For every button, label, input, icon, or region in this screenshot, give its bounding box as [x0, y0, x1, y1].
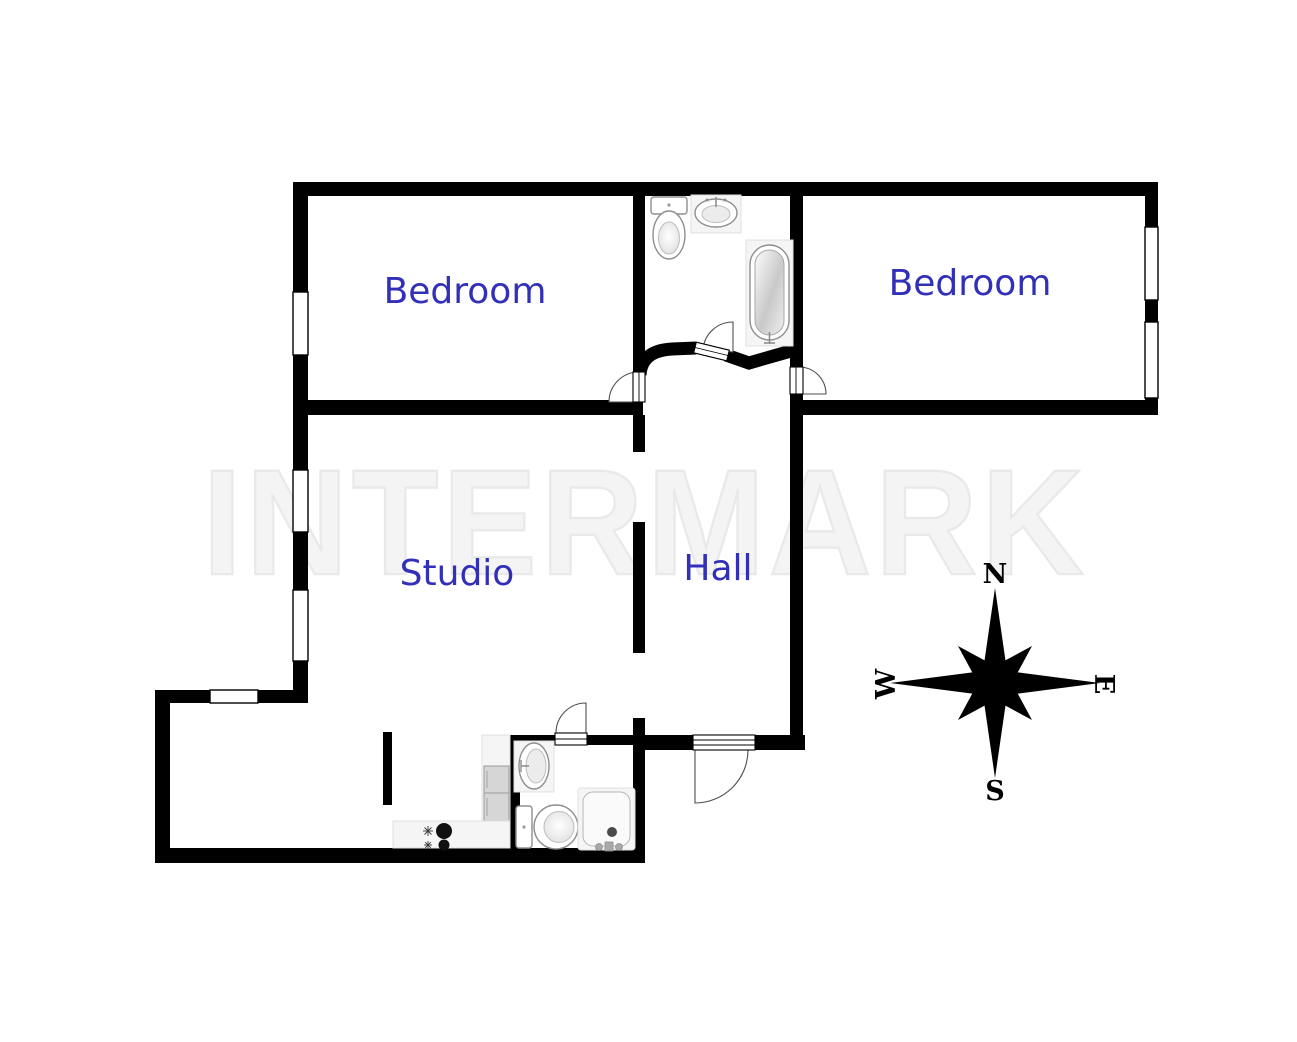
room-label-studio: Studio — [400, 553, 515, 594]
bottom-bathroom-fixtures — [514, 741, 635, 851]
cabinet-icon — [482, 735, 510, 822]
bedroom-left-door — [609, 372, 645, 402]
compass-east-label: E — [1088, 674, 1119, 695]
compass-west-label: W — [871, 668, 902, 700]
window — [293, 292, 308, 355]
window — [1145, 227, 1158, 300]
bathtub-icon — [746, 240, 793, 346]
shower-icon — [578, 788, 635, 851]
sink-icon — [691, 195, 741, 233]
room-label-bedroom-right: Bedroom — [889, 263, 1052, 304]
bathroom-door — [694, 322, 733, 361]
compass-south-label: S — [985, 776, 1005, 807]
toilet-icon — [651, 197, 687, 259]
window — [293, 590, 308, 661]
bathroom2-door — [555, 703, 587, 745]
room-label-hall: Hall — [683, 548, 752, 589]
floor-plan: INTERMARK — [0, 0, 1297, 1042]
room-label-bedroom-left: Bedroom — [384, 271, 547, 312]
window — [1145, 322, 1158, 398]
kitchen-fixtures — [393, 735, 510, 851]
entrance-door — [693, 735, 755, 803]
stove-icon — [393, 821, 510, 851]
sink-icon — [514, 741, 554, 792]
window — [293, 470, 308, 532]
top-bathroom-fixtures — [651, 195, 793, 346]
toilet-icon — [516, 805, 578, 849]
compass-north-label: N — [983, 559, 1008, 590]
bedroom-right-door — [790, 367, 826, 394]
window — [210, 690, 258, 703]
floorplan-canvas: INTERMARK — [0, 0, 1297, 1042]
